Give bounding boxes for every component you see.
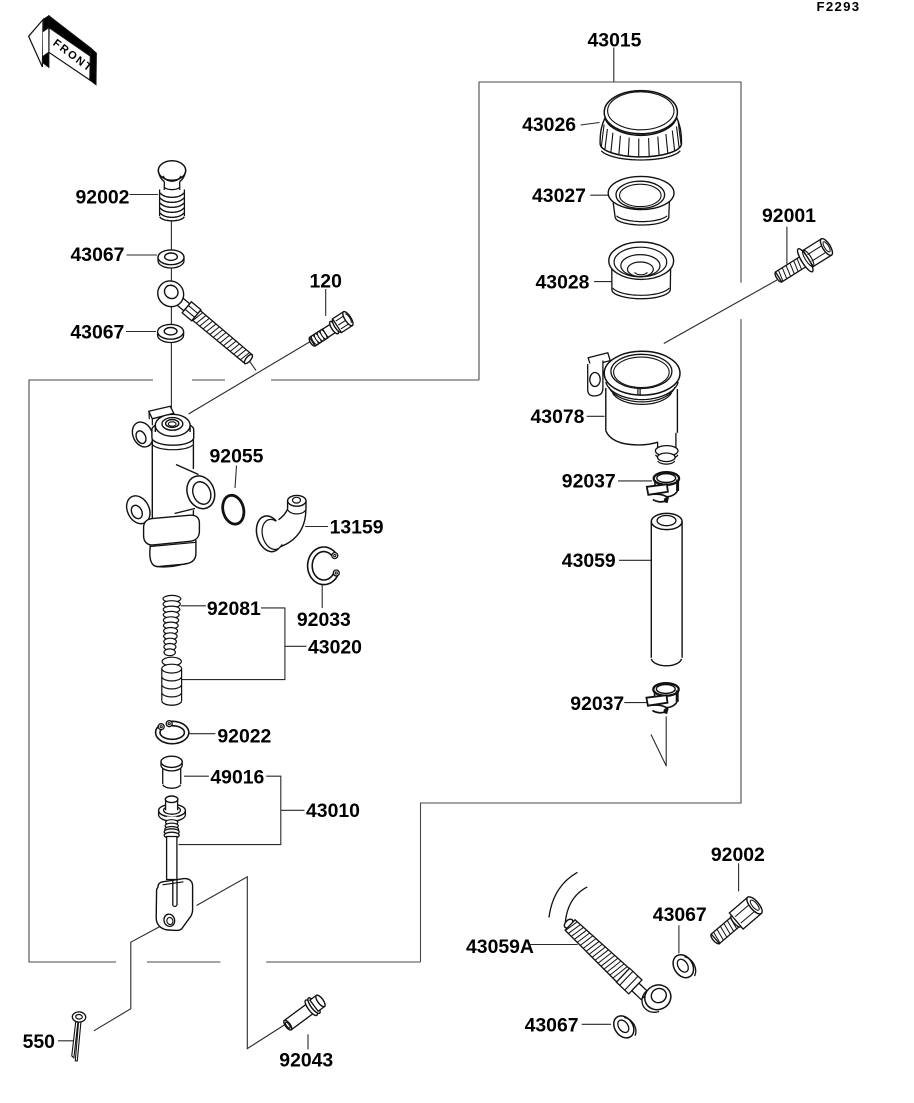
svg-text:92002: 92002: [76, 186, 130, 208]
svg-text:43015: 43015: [588, 29, 642, 51]
svg-text:92001: 92001: [762, 205, 816, 227]
svg-text:F2293: F2293: [817, 0, 861, 14]
svg-text:43059A: 43059A: [466, 936, 534, 958]
svg-text:120: 120: [310, 271, 342, 293]
svg-text:43067: 43067: [653, 904, 707, 926]
svg-text:43026: 43026: [522, 114, 576, 136]
svg-text:92055: 92055: [210, 445, 264, 467]
svg-text:92037: 92037: [562, 471, 616, 493]
svg-text:92037: 92037: [570, 693, 624, 715]
svg-text:43078: 43078: [531, 406, 585, 428]
svg-text:92033: 92033: [297, 609, 351, 631]
svg-text:49016: 49016: [210, 767, 264, 789]
svg-text:43059: 43059: [562, 550, 616, 572]
svg-text:43067: 43067: [70, 322, 124, 344]
svg-text:92022: 92022: [217, 726, 271, 748]
svg-text:43027: 43027: [532, 185, 586, 207]
svg-text:43020: 43020: [308, 637, 362, 659]
svg-text:43010: 43010: [306, 800, 360, 822]
svg-text:92081: 92081: [207, 598, 261, 620]
svg-text:550: 550: [23, 1031, 55, 1053]
svg-text:43028: 43028: [536, 272, 590, 294]
svg-text:43067: 43067: [71, 244, 125, 266]
svg-text:92002: 92002: [711, 844, 765, 866]
svg-text:13159: 13159: [330, 516, 384, 538]
svg-text:43067: 43067: [525, 1015, 579, 1037]
svg-text:92043: 92043: [279, 1049, 333, 1071]
